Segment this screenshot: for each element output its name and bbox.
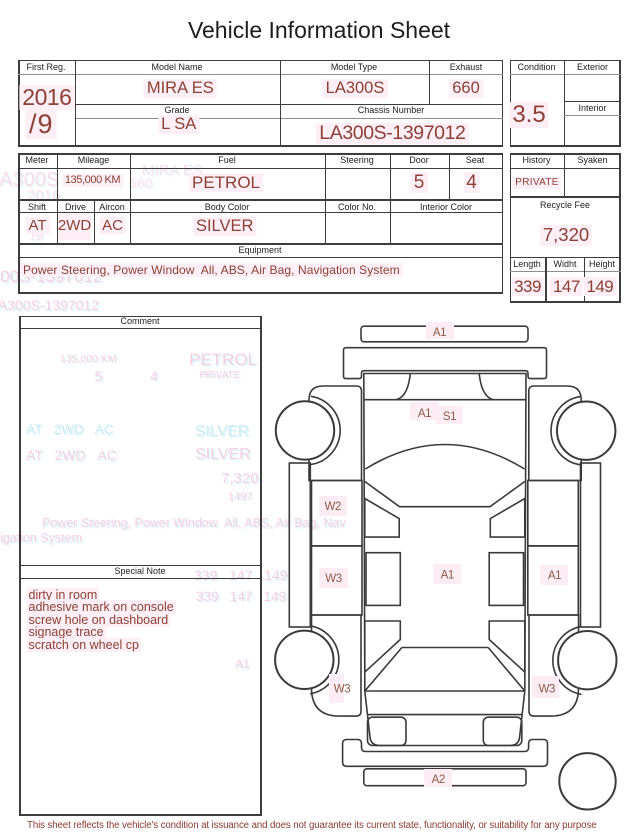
svg-text:W3: W3 (325, 573, 341, 585)
svg-text:S1: S1 (443, 411, 456, 423)
svg-text:A1: A1 (433, 327, 446, 339)
svg-text:W3: W3 (334, 684, 350, 696)
svg-text:W2: W2 (324, 501, 340, 513)
svg-text:A2: A2 (432, 774, 445, 786)
svg-text:A1: A1 (548, 570, 561, 582)
svg-text:A1: A1 (418, 408, 431, 420)
svg-text:W3: W3 (539, 684, 555, 696)
svg-text:A1: A1 (441, 570, 454, 582)
